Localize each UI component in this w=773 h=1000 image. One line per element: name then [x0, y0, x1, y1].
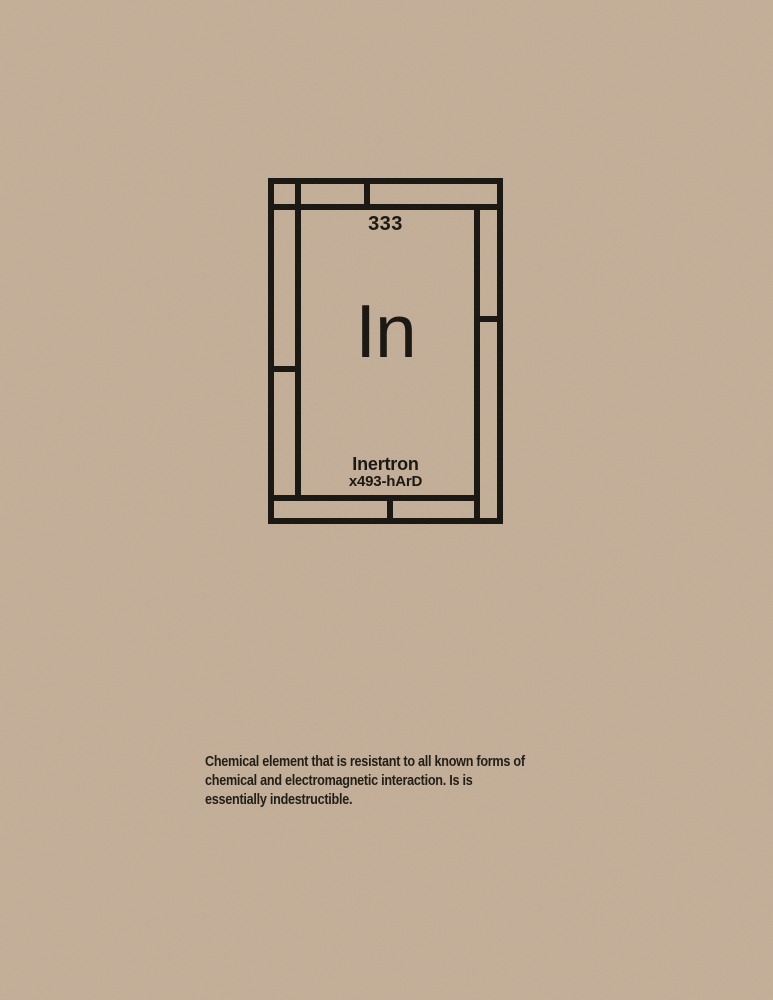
atomic-number: 333 — [268, 214, 503, 234]
frame-inner-bottom-line — [268, 495, 480, 501]
element-tile: 333 In Inertron x493-hArD — [268, 178, 503, 524]
poster-background: 333 In Inertron x493-hArD Chemical eleme… — [0, 0, 773, 1000]
element-symbol: In — [268, 294, 503, 369]
frame-outer-top-line — [268, 178, 503, 184]
element-name: Inertron — [268, 455, 503, 473]
description-line-2: chemical and electromagnetic interaction… — [205, 772, 525, 791]
frame-bottom-divider — [387, 495, 393, 524]
frame-inner-top-line — [268, 204, 503, 210]
description-text: Chemical element that is resistant to al… — [205, 753, 525, 810]
description-line-1: Chemical element that is resistant to al… — [205, 753, 525, 772]
description-line-3: essentially indestructible. — [205, 791, 525, 810]
frame-outer-bottom-line — [268, 518, 503, 524]
element-designation: x493-hArD — [268, 474, 503, 489]
frame-top-divider — [364, 178, 370, 210]
